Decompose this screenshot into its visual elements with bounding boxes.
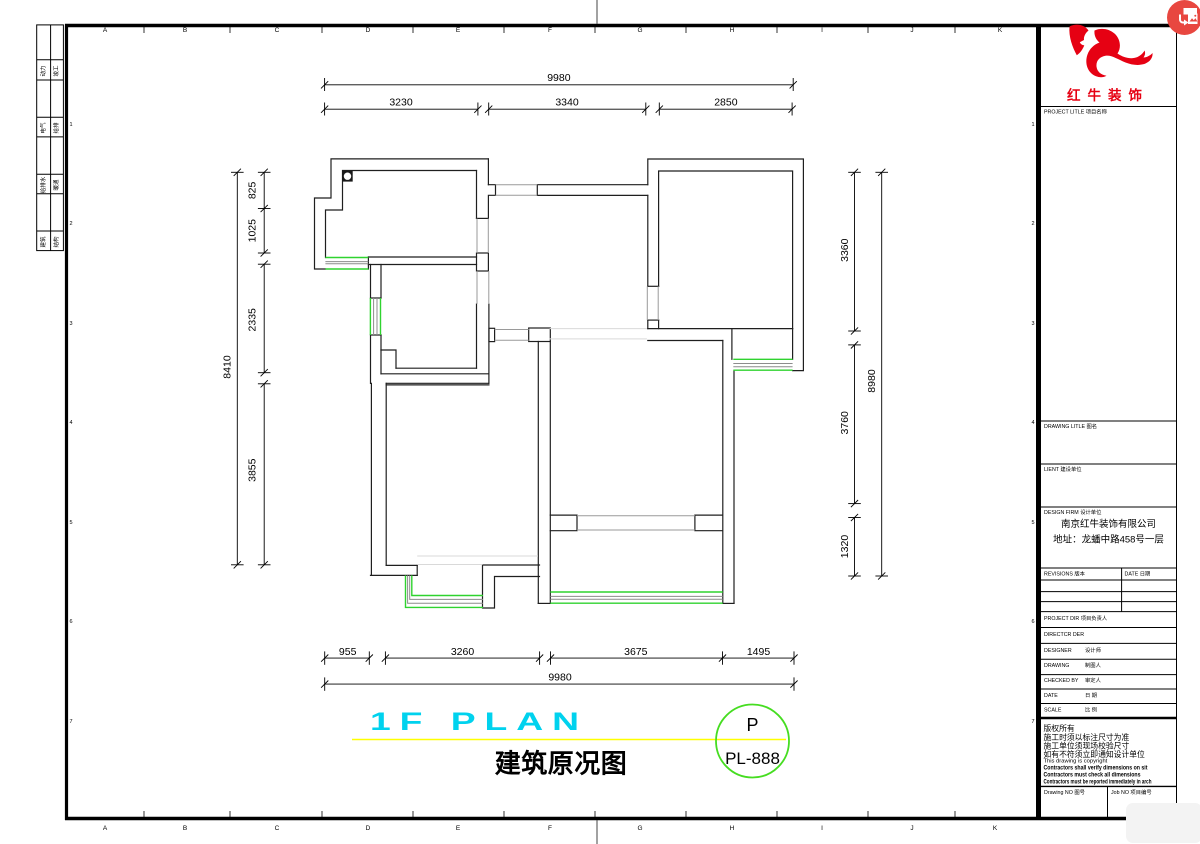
svg-text:A: A xyxy=(103,27,108,34)
svg-text:J: J xyxy=(910,27,913,34)
svg-text:2335: 2335 xyxy=(247,308,259,332)
svg-text:DATE 日期: DATE 日期 xyxy=(1125,571,1151,578)
svg-text:Contractors must be reported i: Contractors must be reported immediately… xyxy=(1044,779,1152,786)
svg-text:1025: 1025 xyxy=(247,219,259,243)
svg-text:955: 955 xyxy=(339,646,357,658)
svg-text:3: 3 xyxy=(1031,321,1034,327)
svg-text:825: 825 xyxy=(247,181,259,199)
svg-text:Contractors shall verify dimen: Contractors shall verify dimensions on s… xyxy=(1044,765,1149,772)
svg-text:2850: 2850 xyxy=(714,97,738,109)
svg-text:建筑: 建筑 xyxy=(39,236,47,248)
svg-text:G: G xyxy=(637,825,642,832)
svg-text:动力: 动力 xyxy=(39,65,47,76)
svg-text:设计师: 设计师 xyxy=(1085,646,1102,654)
svg-text:K: K xyxy=(993,825,998,832)
svg-text:E: E xyxy=(456,27,461,34)
svg-text:Contractors must check all dim: Contractors must check all dimensions xyxy=(1044,772,1141,779)
svg-text:D: D xyxy=(366,27,371,34)
svg-text:PROJECT DIR 项目负责人: PROJECT DIR 项目负责人 xyxy=(1044,614,1108,622)
svg-text:给排水: 给排水 xyxy=(39,176,47,193)
svg-text:1320: 1320 xyxy=(839,535,851,559)
svg-text:3260: 3260 xyxy=(451,646,475,658)
svg-text:6: 6 xyxy=(1031,619,1034,625)
svg-text:I: I xyxy=(821,825,823,832)
svg-text:DIRECTCR DER: DIRECTCR DER xyxy=(1044,632,1084,638)
svg-text:如有不符须立即通知设计单位: 如有不符须立即通知设计单位 xyxy=(1044,749,1146,759)
svg-text:3340: 3340 xyxy=(555,97,579,109)
svg-text:3230: 3230 xyxy=(389,97,413,109)
svg-text:日 期: 日 期 xyxy=(1085,692,1097,699)
svg-text:B: B xyxy=(183,825,187,832)
svg-text:3675: 3675 xyxy=(624,646,648,658)
svg-text:PROJECT LITLE 项目名称: PROJECT LITLE 项目名称 xyxy=(1044,108,1108,116)
svg-text:建筑原况图: 建筑原况图 xyxy=(495,749,628,779)
svg-text:A: A xyxy=(103,825,108,832)
svg-text:版权所有: 版权所有 xyxy=(1044,723,1075,733)
svg-text:南京红牛装饰有限公司: 南京红牛装饰有限公司 xyxy=(1061,518,1156,530)
svg-text:H: H xyxy=(730,825,735,832)
svg-text:7: 7 xyxy=(69,719,72,725)
svg-text:竣工: 竣工 xyxy=(52,65,60,77)
svg-text:施工时须以标注尺寸为准: 施工时须以标注尺寸为准 xyxy=(1044,732,1130,742)
svg-text:5: 5 xyxy=(69,520,72,526)
svg-text:4: 4 xyxy=(1031,420,1034,426)
svg-text:施工单位须现场校验尺寸: 施工单位须现场校验尺寸 xyxy=(1044,741,1130,751)
svg-text:4: 4 xyxy=(69,420,72,426)
svg-text:1: 1 xyxy=(69,122,72,128)
svg-text:DRAWING: DRAWING xyxy=(1044,663,1069,669)
svg-text:地址：龙蟠中路458号一层: 地址：龙蟠中路458号一层 xyxy=(1053,534,1164,546)
svg-text:D: D xyxy=(366,825,371,832)
svg-text:8980: 8980 xyxy=(866,369,878,393)
svg-text:1495: 1495 xyxy=(747,646,771,658)
svg-text:SCALE: SCALE xyxy=(1044,708,1062,714)
svg-text:E: E xyxy=(456,825,461,832)
svg-text:制图人: 制图人 xyxy=(1085,661,1102,669)
svg-text:3: 3 xyxy=(69,321,72,327)
svg-text:DESIGN FIRM 设计单位: DESIGN FIRM 设计单位 xyxy=(1044,508,1102,516)
svg-text:J: J xyxy=(910,825,913,832)
svg-text:H: H xyxy=(730,27,735,34)
svg-text:9980: 9980 xyxy=(548,672,572,684)
svg-text:C: C xyxy=(275,27,280,34)
svg-text:P: P xyxy=(746,715,758,735)
svg-text:DRAWING LITLE 图名: DRAWING LITLE 图名 xyxy=(1044,422,1097,430)
svg-text:Drawing NO 图号: Drawing NO 图号 xyxy=(1044,788,1085,796)
svg-text:审定人: 审定人 xyxy=(1085,676,1102,684)
svg-text:5: 5 xyxy=(1031,520,1034,526)
svg-text:DATE: DATE xyxy=(1044,693,1058,699)
svg-text:1: 1 xyxy=(1031,122,1034,128)
svg-text:结构: 结构 xyxy=(52,236,60,248)
svg-text:REVISIONS 版本: REVISIONS 版本 xyxy=(1044,570,1086,578)
svg-text:6: 6 xyxy=(69,619,72,625)
svg-text:F: F xyxy=(548,825,552,832)
svg-text:G: G xyxy=(637,27,642,34)
svg-text:PL-888: PL-888 xyxy=(725,749,780,768)
svg-text:红牛装饰: 红牛装饰 xyxy=(1067,87,1149,103)
svg-text:3760: 3760 xyxy=(839,411,851,435)
svg-text:CHECKED BY: CHECKED BY xyxy=(1044,678,1079,684)
svg-text:C: C xyxy=(275,825,280,832)
svg-text:K: K xyxy=(998,27,1003,34)
svg-text:9980: 9980 xyxy=(547,72,571,84)
svg-text:给排: 给排 xyxy=(52,122,60,134)
svg-text:F: F xyxy=(548,27,552,34)
svg-text:2: 2 xyxy=(1031,221,1034,227)
svg-text:Job NO 项目编号: Job NO 项目编号 xyxy=(1111,788,1152,796)
svg-text:3360: 3360 xyxy=(839,238,851,262)
svg-text:7: 7 xyxy=(1031,719,1034,725)
svg-text:暖通: 暖通 xyxy=(52,179,60,191)
svg-text:DESIGNER: DESIGNER xyxy=(1044,648,1072,654)
svg-text:2: 2 xyxy=(69,221,72,227)
svg-text:3855: 3855 xyxy=(247,458,259,482)
svg-text:电气: 电气 xyxy=(39,122,47,134)
svg-text:LIENT 建设单位: LIENT 建设单位 xyxy=(1044,465,1082,473)
svg-text:I: I xyxy=(821,27,823,34)
svg-text:比 例: 比 例 xyxy=(1085,706,1097,714)
svg-text:8410: 8410 xyxy=(222,355,234,379)
svg-text:1F PLAN: 1F PLAN xyxy=(370,708,588,736)
svg-text:B: B xyxy=(183,27,187,34)
